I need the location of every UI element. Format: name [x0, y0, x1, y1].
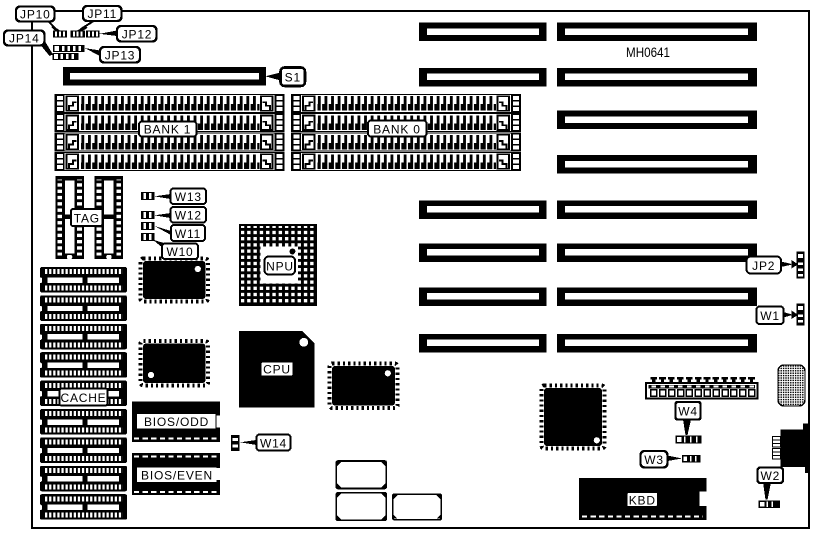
svg-text:JP2: JP2: [752, 259, 775, 273]
svg-text:JP10: JP10: [20, 8, 51, 22]
svg-text:W1: W1: [760, 309, 780, 323]
svg-text:JP13: JP13: [105, 48, 136, 62]
svg-text:W10: W10: [166, 245, 193, 259]
svg-text:CPU: CPU: [263, 363, 291, 377]
svg-text:W3: W3: [644, 453, 664, 467]
svg-text:W13: W13: [175, 190, 202, 204]
svg-text:S1: S1: [285, 71, 301, 85]
svg-text:BANK 0: BANK 0: [373, 122, 421, 136]
svg-text:W4: W4: [678, 405, 698, 419]
svg-text:JP11: JP11: [87, 7, 117, 21]
svg-text:BIOS/ODD: BIOS/ODD: [144, 415, 209, 429]
svg-text:W11: W11: [175, 227, 201, 241]
svg-text:W12: W12: [175, 209, 202, 223]
svg-text:TAG: TAG: [74, 212, 100, 226]
svg-text:JP12: JP12: [122, 27, 153, 41]
svg-text:KBD: KBD: [629, 493, 656, 507]
svg-text:W2: W2: [760, 469, 780, 483]
svg-text:NPU: NPU: [266, 260, 294, 274]
svg-text:MH0641: MH0641: [626, 44, 670, 60]
svg-text:BANK 1: BANK 1: [144, 123, 192, 137]
svg-text:JP14: JP14: [9, 32, 40, 46]
svg-text:W14: W14: [260, 436, 287, 450]
svg-text:CACHE: CACHE: [60, 391, 106, 405]
svg-text:BIOS/EVEN: BIOS/EVEN: [141, 469, 213, 483]
